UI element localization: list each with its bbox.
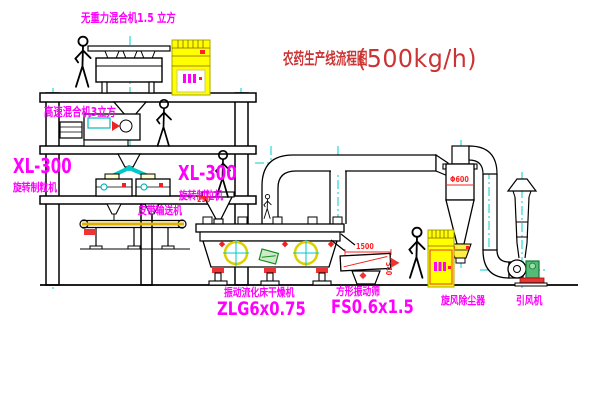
pesticide-line-flow-diagram: 无重力混合机1.5 立方 农药生产线流程图 (500kg/h) 高速混合机3立方… (0, 0, 600, 403)
granulator-left-machine (96, 179, 132, 196)
diagram-title: 农药生产线流程图 (283, 51, 367, 67)
cabinet-controls (434, 262, 446, 271)
worker-roof (75, 37, 90, 87)
control-cabinet-2 (428, 230, 454, 287)
dim-sieve-length: 1500 (356, 243, 374, 251)
high-speed-mixer (60, 114, 140, 167)
y-chute (105, 167, 155, 179)
label-dryer-model: ZLG6x0.75 (217, 300, 306, 319)
sieve-stand (352, 271, 380, 284)
label-gravity-free-mixer: 无重力混合机1.5 立方 (81, 12, 176, 24)
granulator-right-machine (136, 179, 170, 196)
label-sieve-model: FS0.6x1.5 (331, 298, 414, 317)
exhaust-ducts (262, 155, 448, 224)
cabinet-controls (183, 74, 196, 83)
label-belt-conveyor: 皮带输送机 (138, 205, 182, 216)
dryer-legs (209, 267, 331, 285)
worker-ground (409, 228, 424, 278)
dim-feeder: 250 (197, 196, 210, 204)
control-cabinet-1 (172, 40, 210, 95)
fluid-bed-dryer (196, 217, 344, 285)
label-granulator-center-model: XL-300 (178, 163, 237, 183)
indicator-light (200, 50, 205, 54)
diagram-title-capacity: (500kg/h) (357, 46, 477, 71)
label-granulator-left-name: 旋转制粒机 (13, 182, 57, 193)
worker-floor2 (157, 100, 171, 146)
label-cyclone: 旋风除尘器 (441, 295, 485, 306)
indicator-light (448, 266, 451, 269)
belt-conveyor (80, 220, 190, 249)
label-dryer-name: 振动流化床干燥机 (224, 287, 294, 298)
label-fan: 引风机 (516, 295, 542, 306)
dim-cyclone-diameter: Φ600 (450, 176, 469, 184)
label-granulator-left-model: XL-300 (13, 156, 72, 176)
label-high-speed-mixer: 高速混合机3立方 (44, 106, 116, 118)
fan-base (520, 278, 544, 283)
dim-sieve-height: 540 (384, 262, 392, 275)
induced-draft-fan-machine (508, 260, 547, 286)
